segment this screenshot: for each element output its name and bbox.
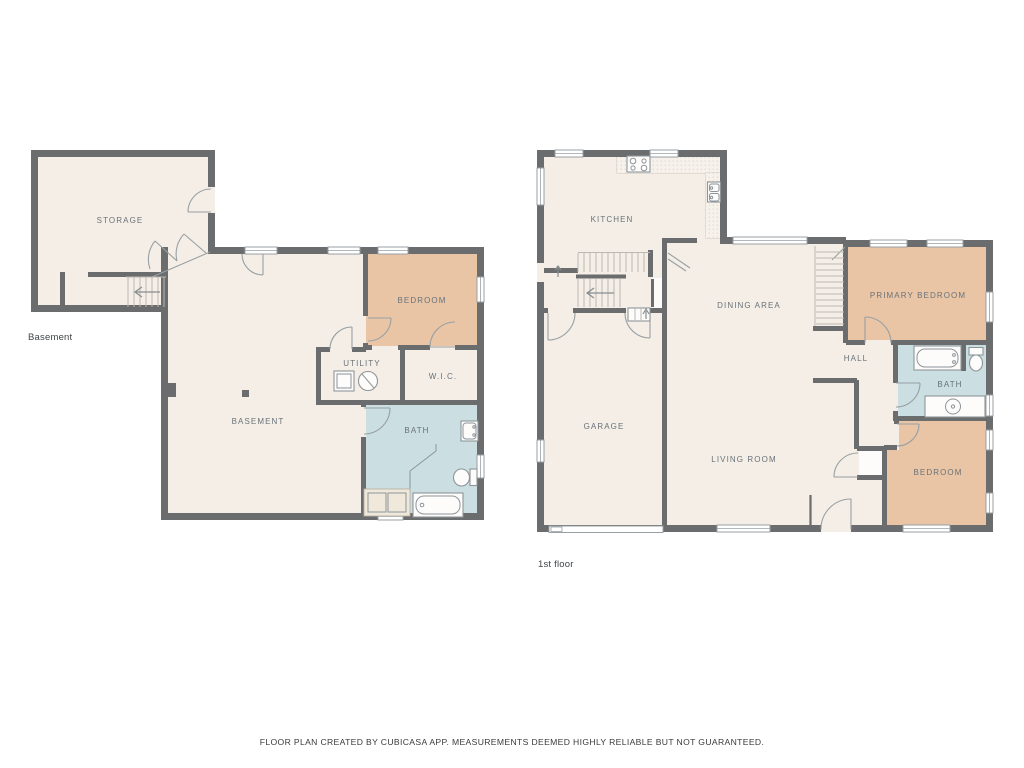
dining-area-label: DINING AREA bbox=[717, 301, 781, 310]
living-room-label: LIVING ROOM bbox=[711, 455, 776, 464]
disclaimer-text: FLOOR PLAN CREATED BY CUBICASA APP. MEAS… bbox=[0, 737, 1024, 747]
floor-plan-page: STORAGE BEDROOM UTILITY W.I.C. BATH BASE… bbox=[0, 0, 1024, 768]
basement-bath-label: BATH bbox=[404, 426, 429, 435]
wic-label: W.I.C. bbox=[429, 372, 457, 381]
basement-bedroom-label: BEDROOM bbox=[397, 296, 446, 305]
support-column bbox=[242, 390, 249, 397]
first-toilet-icon bbox=[970, 355, 983, 371]
basement-toilet-icon bbox=[454, 469, 470, 486]
utility-label: UTILITY bbox=[343, 359, 380, 368]
chimney-block bbox=[161, 383, 176, 397]
basement-label: BASEMENT bbox=[232, 417, 285, 426]
storage-label: STORAGE bbox=[97, 216, 144, 225]
first-bedroom-label: BEDROOM bbox=[913, 468, 962, 477]
first-floor-plan: KITCHEN DINING AREA PRIMARY BEDROOM HALL… bbox=[537, 150, 993, 570]
closet-floor bbox=[859, 451, 884, 477]
basement-toilet-tank bbox=[470, 469, 477, 486]
first-floor-title: 1st floor bbox=[538, 559, 574, 570]
kitchen-label: KITCHEN bbox=[591, 215, 634, 224]
basement-floor-fills bbox=[31, 150, 484, 520]
basement-floor-title: Basement bbox=[28, 332, 73, 343]
hall-label: HALL bbox=[844, 354, 868, 363]
floor-plan-drawing: STORAGE BEDROOM UTILITY W.I.C. BATH BASE… bbox=[0, 0, 1024, 768]
primary-bedroom-label: PRIMARY BEDROOM bbox=[870, 291, 966, 300]
garage-door-strip bbox=[549, 526, 663, 533]
first-bath-label: BATH bbox=[937, 380, 962, 389]
first-toilet-tank bbox=[969, 348, 983, 356]
basement-plan: STORAGE BEDROOM UTILITY W.I.C. BATH BASE… bbox=[28, 150, 484, 520]
garage-label: GARAGE bbox=[584, 422, 625, 431]
